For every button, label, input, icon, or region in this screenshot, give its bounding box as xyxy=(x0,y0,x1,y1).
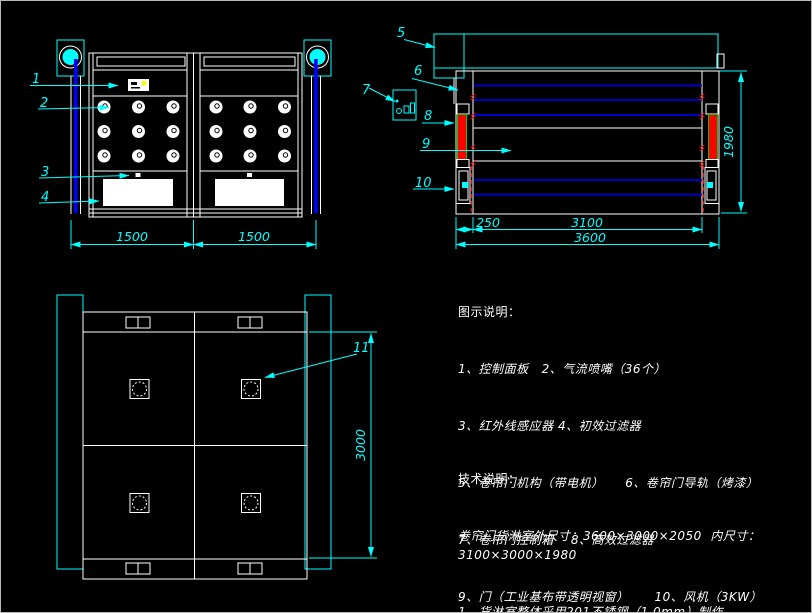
dim-inner-height: 1980 xyxy=(721,126,736,158)
tech-note-line: 1、货淋室整体采用201不锈钢（1.0mm）制作。 xyxy=(458,603,810,613)
technical-notes: 技术说明： 卷帘门货淋室外尺寸：3600×3000×2050 内尺寸：3100×… xyxy=(458,432,810,613)
nozzle xyxy=(244,125,257,138)
callout-11: 11 xyxy=(353,341,370,356)
nozzle xyxy=(167,150,180,163)
dim-bay-right: 1500 xyxy=(238,229,270,244)
ceiling-light xyxy=(130,380,149,399)
legend-line: 1、控制面板 2、气流喷嘴（36个） xyxy=(458,360,810,379)
nozzle xyxy=(98,125,111,138)
plan-view-dimensions: 3000 xyxy=(309,332,377,558)
dim-offset: 250 xyxy=(476,215,500,230)
hepa-filter-right xyxy=(706,104,718,168)
plan-view: 11 3000 xyxy=(57,295,377,579)
dim-total-width: 3600 xyxy=(574,230,606,245)
nozzle xyxy=(210,150,223,163)
side-view-callouts: 5 6 7 8 9 10 xyxy=(362,26,511,191)
nozzle xyxy=(244,150,257,163)
curtain-slats xyxy=(474,86,702,195)
plan-frame xyxy=(83,312,307,579)
plan-rail-right xyxy=(305,295,331,569)
fan-unit-left xyxy=(456,166,472,212)
tech-notes-title: 技术说明： xyxy=(458,470,810,489)
nozzle-grid xyxy=(98,101,292,163)
plan-view-callouts: 11 xyxy=(265,341,370,378)
primary-filter-left xyxy=(103,179,173,206)
callout-9: 9 xyxy=(422,137,430,152)
nozzle xyxy=(210,125,223,138)
nozzle xyxy=(167,101,180,114)
ceiling-light xyxy=(242,494,261,513)
nozzle xyxy=(167,125,180,138)
nozzle xyxy=(210,101,223,114)
infrared-sensor-right xyxy=(247,173,252,177)
side-body-frame xyxy=(456,71,719,214)
nozzle xyxy=(132,150,145,163)
nozzle xyxy=(278,150,291,163)
nozzle xyxy=(244,101,257,114)
nozzle xyxy=(98,150,111,163)
nozzle xyxy=(278,101,291,114)
callout-6: 6 xyxy=(414,64,422,79)
front-view: 1 2 3 4 1500 1500 xyxy=(30,40,331,249)
infrared-sensor-left xyxy=(136,173,141,177)
plan-rail-left xyxy=(57,295,83,569)
callout-8: 8 xyxy=(424,109,432,124)
callout-7: 7 xyxy=(362,83,371,98)
nozzle xyxy=(278,125,291,138)
door-rail-right xyxy=(312,59,321,214)
callout-1: 1 xyxy=(32,72,40,87)
dim-depth: 3000 xyxy=(353,429,368,461)
callout-5: 5 xyxy=(397,26,405,41)
fan-unit-right xyxy=(704,166,720,212)
primary-filter-right xyxy=(215,179,284,206)
cad-drawing-canvas: 1 2 3 4 1500 1500 xyxy=(0,0,812,613)
hepa-filter-left xyxy=(457,104,469,168)
tech-note-line: 卷帘门货淋室外尺寸：3600×3000×2050 内尺寸：3100×3000×1… xyxy=(458,527,810,565)
weld-ticks xyxy=(471,94,705,167)
door-rail-left xyxy=(71,59,81,214)
nozzle xyxy=(132,101,145,114)
door-control-box xyxy=(393,90,416,120)
ceiling-light xyxy=(242,380,261,399)
legend-title: 图示说明： xyxy=(458,303,810,322)
dim-inner-width: 3100 xyxy=(571,215,603,230)
nozzle xyxy=(132,125,145,138)
dim-bay-left: 1500 xyxy=(116,229,148,244)
control-panel xyxy=(128,79,149,91)
front-view-dimensions: 1500 1500 xyxy=(71,220,316,249)
nozzle xyxy=(98,101,111,114)
roller-drum-left xyxy=(57,40,84,76)
side-view: 5 6 7 8 9 10 250 3100 3600 xyxy=(362,26,747,249)
ceiling-light xyxy=(130,494,149,513)
